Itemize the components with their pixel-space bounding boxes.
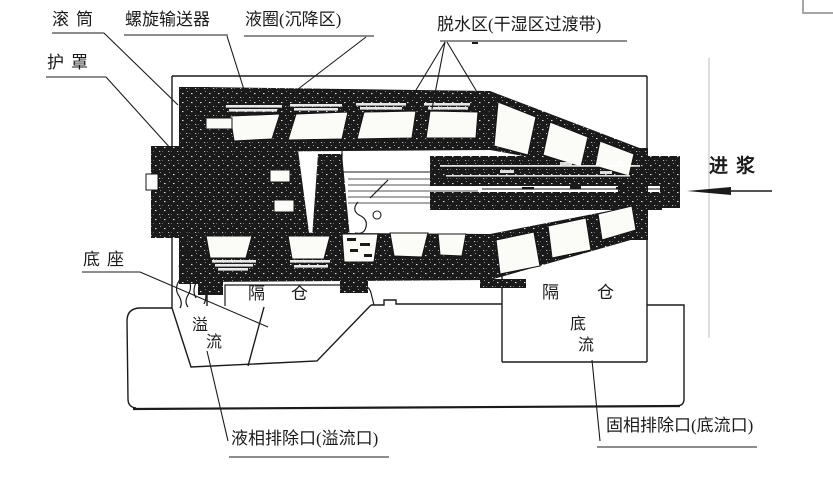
- label-underflow-char2: 流: [578, 338, 594, 355]
- label-guard: 护罩: [47, 54, 95, 72]
- label-liquid-outlet: 液相排除口(溢流口): [231, 430, 378, 448]
- label-feed: 进浆: [709, 157, 763, 177]
- conveyor-hub-disc-2: [312, 154, 350, 238]
- label-overflow-char1: 溢: [192, 318, 208, 335]
- label-overflow-char2: 流: [206, 335, 222, 352]
- port-block-mid: [340, 275, 368, 293]
- label-compartment-right: 隔仓: [542, 284, 652, 302]
- centrifuge-diagram: 滚筒 螺旋输送器 液圈(沉降区) 脱水区(干湿区过渡带) 护罩 进浆 底座 隔仓…: [0, 0, 833, 477]
- label-compartment-left: 隔仓: [248, 285, 334, 303]
- label-base: 底座: [83, 251, 131, 269]
- page-corner-mark: [803, 0, 833, 13]
- label-drum: 滚筒: [52, 11, 100, 29]
- drive-block: [151, 146, 262, 238]
- feed-tube-top: [430, 156, 680, 186]
- label-underflow-char1: 底: [570, 317, 586, 334]
- label-solid-outlet: 固相排除口(底流口): [606, 417, 753, 435]
- feed-arrow: [687, 187, 772, 195]
- label-screw-conveyor: 螺旋输送器: [125, 11, 210, 29]
- base-outline: [127, 300, 684, 409]
- diagram-linework: [0, 0, 833, 477]
- port-block-left: [198, 272, 223, 295]
- label-liquid-ring: 液圈(沉降区): [245, 11, 341, 29]
- label-dewatering-zone: 脱水区(干湿区过渡带): [437, 16, 601, 34]
- conveyor-hub-disc: [252, 150, 310, 240]
